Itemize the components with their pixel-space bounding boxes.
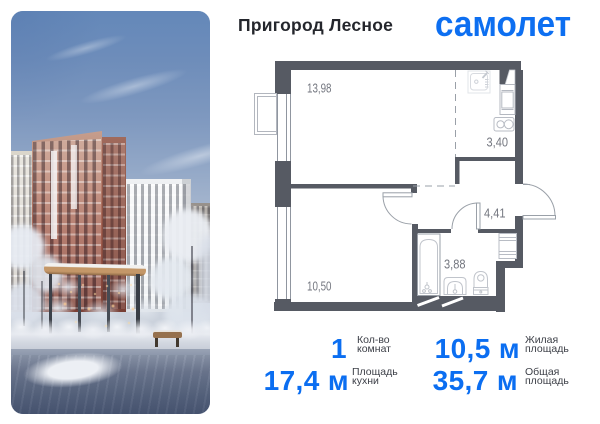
svg-text:4,41: 4,41 <box>484 206 506 221</box>
svg-text:13,98: 13,98 <box>307 81 332 96</box>
svg-text:3,88: 3,88 <box>444 257 466 272</box>
svg-text:10,50: 10,50 <box>307 279 332 294</box>
svg-text:3,40: 3,40 <box>487 135 509 150</box>
